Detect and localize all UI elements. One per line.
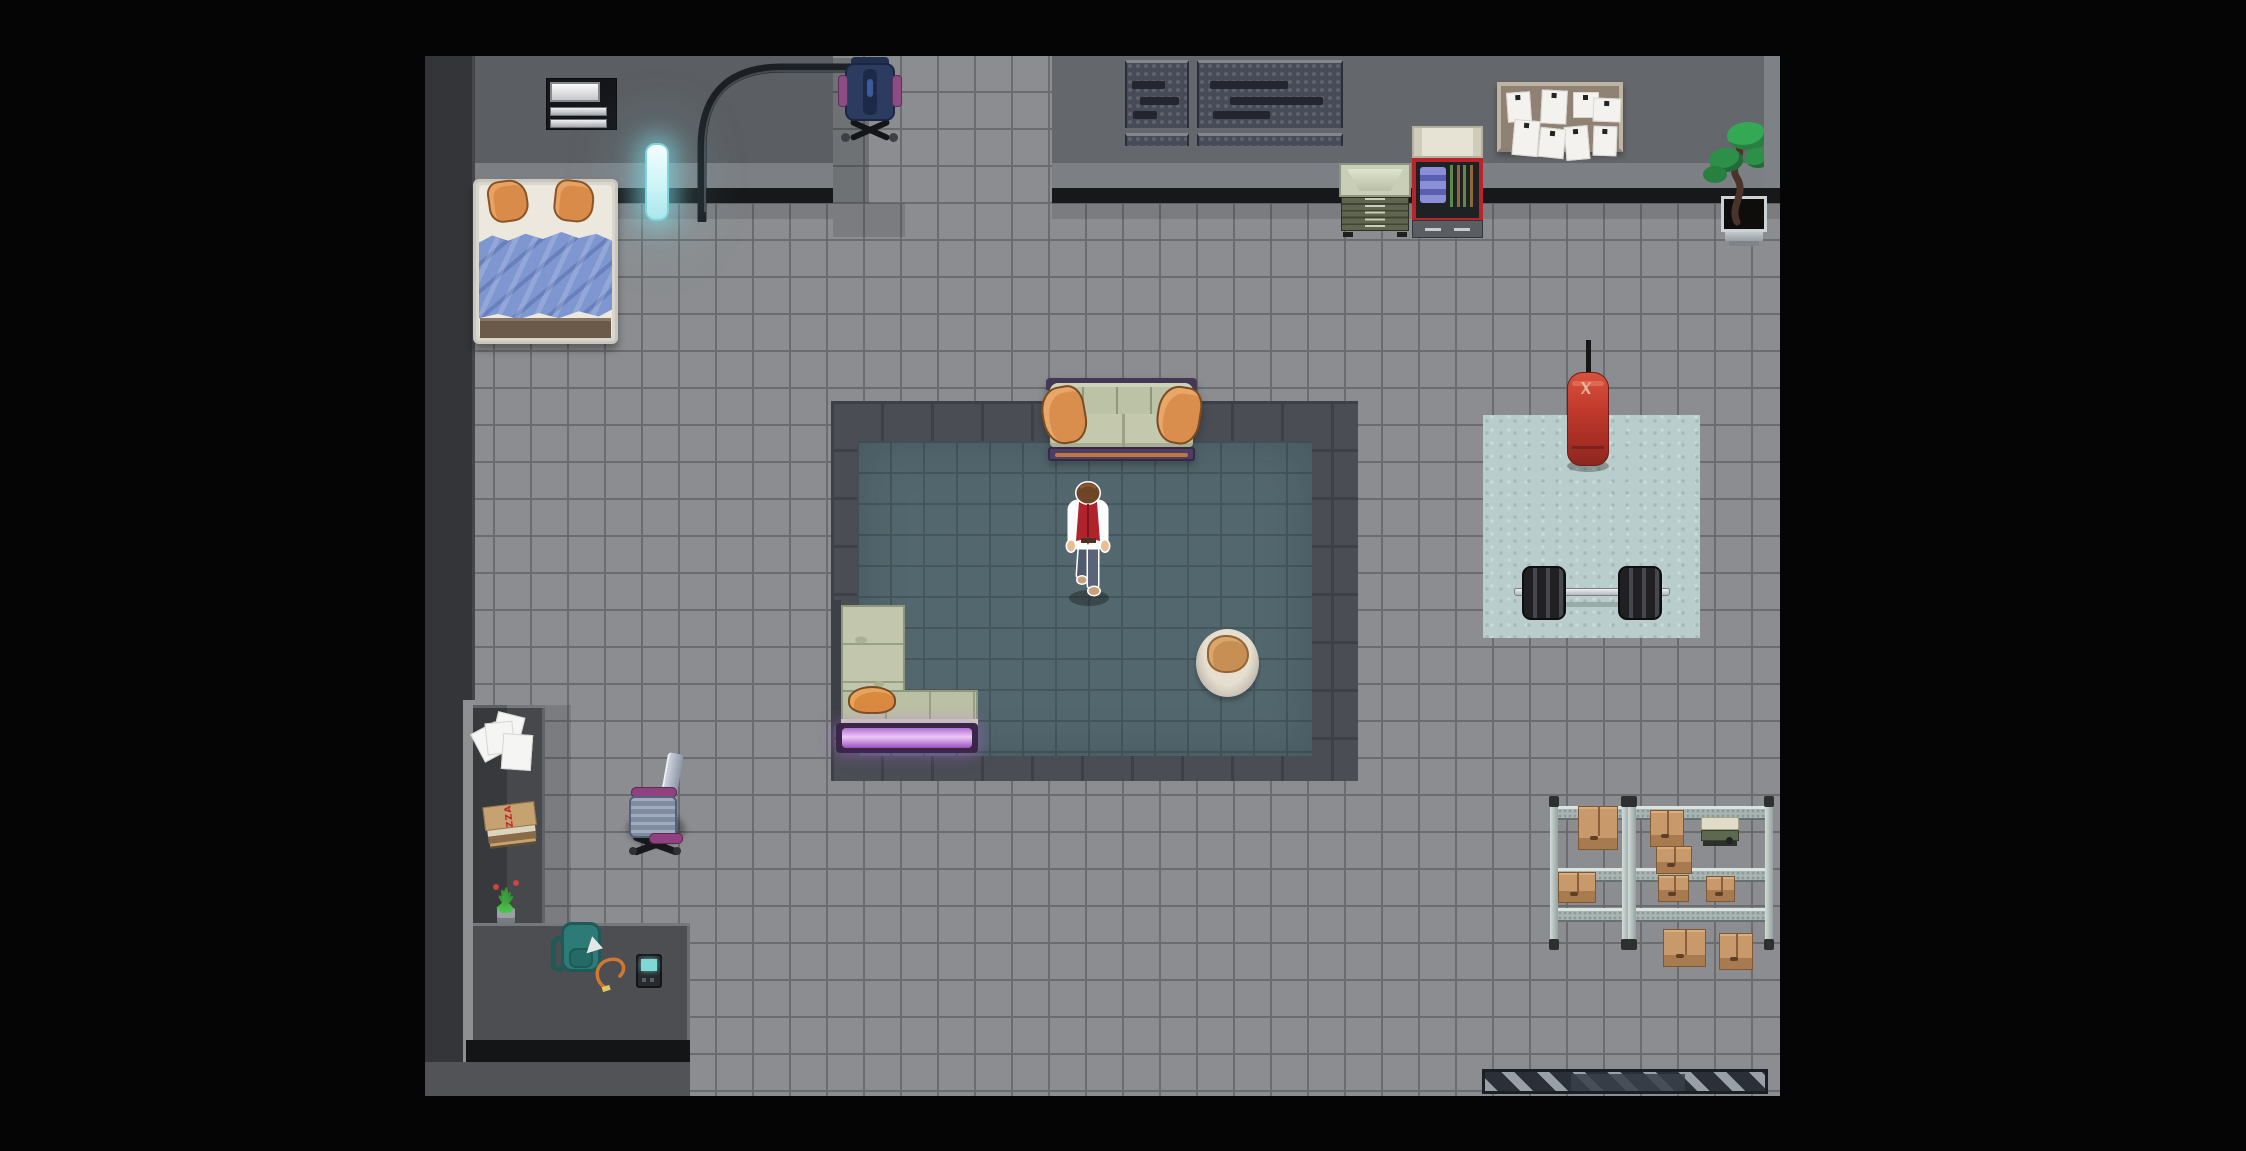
cabinet-feet (1343, 232, 1407, 237)
barbell-plates-right (1618, 566, 1662, 620)
rack-shelf (1553, 908, 1627, 922)
workbench-drawers (1412, 220, 1483, 238)
rack-post (1765, 798, 1773, 948)
bed (473, 179, 618, 344)
pinned-note (1592, 126, 1617, 157)
potted-plant-small (489, 878, 523, 923)
gaming-chair (841, 57, 899, 143)
pouf-cushion-top (1207, 635, 1249, 673)
plant-red-tip (513, 880, 519, 886)
box-rack-right-hang (1656, 846, 1692, 874)
chair-wheel (889, 133, 898, 142)
box-rack-left-mid (1558, 872, 1596, 903)
hazard-strip-inset (1571, 1074, 1685, 1091)
chair-seat (629, 796, 677, 838)
right-wall-strip (1764, 56, 1780, 188)
letterbox-left (0, 0, 425, 1151)
chair-armrest (838, 75, 848, 107)
hanging-tools (1450, 165, 1474, 207)
cabinet-top (1339, 163, 1411, 197)
acoustic-panel-right (1197, 60, 1343, 128)
bulletin-board (1497, 82, 1623, 152)
acoustic-slot (1132, 81, 1165, 89)
punching-bag-rope (1586, 340, 1591, 376)
chair-body (845, 63, 895, 121)
chair-wheel (629, 847, 637, 855)
led-light-bar (836, 723, 978, 753)
chair-armrest (892, 75, 902, 107)
cabinet-handles (1365, 198, 1385, 230)
corner-sofa-pillow (848, 686, 896, 714)
bed-footboard (480, 318, 611, 338)
rack-post (1550, 798, 1558, 948)
punching-bag-scuff (1576, 382, 1596, 394)
chair-wheel (841, 133, 850, 142)
acoustic-slot (1133, 111, 1157, 119)
shelf-slat (550, 107, 607, 116)
rack-shelf (1631, 908, 1770, 922)
game-viewport[interactable]: PIZZA (0, 0, 2246, 1151)
chair-wheel (673, 847, 681, 855)
bonsai-foliage (1703, 166, 1727, 183)
device-button (642, 978, 646, 982)
toolbox-body (1701, 830, 1739, 841)
acoustic-panel-left (1125, 60, 1189, 128)
acoustic-slot (1140, 97, 1179, 105)
toolbox (1701, 817, 1739, 846)
toolbox-lid (1701, 817, 1739, 830)
workbench-shelf (1412, 158, 1483, 222)
device-button (650, 978, 654, 982)
player-character[interactable] (1056, 481, 1120, 611)
device-screen (641, 959, 657, 971)
acoustic-slot (1213, 111, 1270, 119)
storage-nook-shadow (545, 705, 571, 923)
charging-cable-icon (592, 950, 636, 994)
wall-shelf-unit (546, 78, 617, 130)
plant-red-tip (493, 884, 499, 890)
rack-shelf (1631, 868, 1770, 882)
corner-sofa (834, 600, 982, 755)
pinned-note (1538, 127, 1567, 160)
acoustic-panel-right-lower (1197, 133, 1343, 146)
workbench-top (1412, 126, 1483, 158)
bed-blanket (479, 232, 612, 320)
player-sprite-icon (1056, 481, 1120, 611)
ottoman-pouf (1196, 629, 1259, 697)
green-file-cabinet (1339, 163, 1411, 237)
scattered-papers (476, 714, 534, 774)
charging-device (592, 950, 668, 994)
shelf-slat (550, 119, 607, 128)
neon-light-tube (645, 143, 669, 221)
led-light-bar-core (842, 728, 972, 748)
box-floor-2 (1719, 933, 1753, 970)
box-floor-1 (1663, 929, 1706, 967)
bonsai-foliage (1727, 122, 1769, 150)
acoustic-panel-left-lower (1125, 133, 1189, 146)
sofa (1046, 378, 1197, 461)
towel-stack (1420, 167, 1446, 203)
pinned-note (1506, 91, 1532, 123)
acoustic-slot (1210, 81, 1288, 89)
dark-desk-strip (466, 1040, 690, 1064)
box-rack-right-mid1 (1658, 875, 1689, 902)
bonsai-plant (1703, 122, 1773, 246)
chair-armrest (649, 833, 683, 844)
red-workbench-cabinet (1412, 126, 1483, 238)
pinned-note (1593, 98, 1622, 123)
pinned-note (1511, 119, 1540, 157)
letterbox-top (425, 0, 1780, 56)
box-rack-right-top (1650, 810, 1684, 847)
office-chair (627, 753, 685, 856)
pinned-note (1564, 125, 1591, 161)
bottom-wall-strip (425, 1062, 690, 1096)
sofa-base (1048, 447, 1195, 461)
corner-sofa-frame (834, 600, 841, 726)
shelf-top-bin (550, 82, 600, 102)
box-rack-right-mid2 (1706, 876, 1735, 902)
pinned-note (1540, 89, 1568, 124)
paper-sheet (501, 733, 533, 771)
barbell-plates-left (1522, 566, 1566, 620)
toolbox-base (1703, 841, 1737, 846)
rack-post (1628, 798, 1636, 948)
letterbox-bottom (425, 1096, 1780, 1151)
device-body (636, 954, 662, 988)
punching-bag (1564, 340, 1612, 472)
acoustic-slot (1230, 97, 1322, 105)
letterbox-right (1780, 0, 2246, 1151)
pizza-box: PIZZA (482, 801, 539, 853)
barbell (1514, 566, 1670, 622)
box-rack-left-top (1578, 806, 1618, 850)
